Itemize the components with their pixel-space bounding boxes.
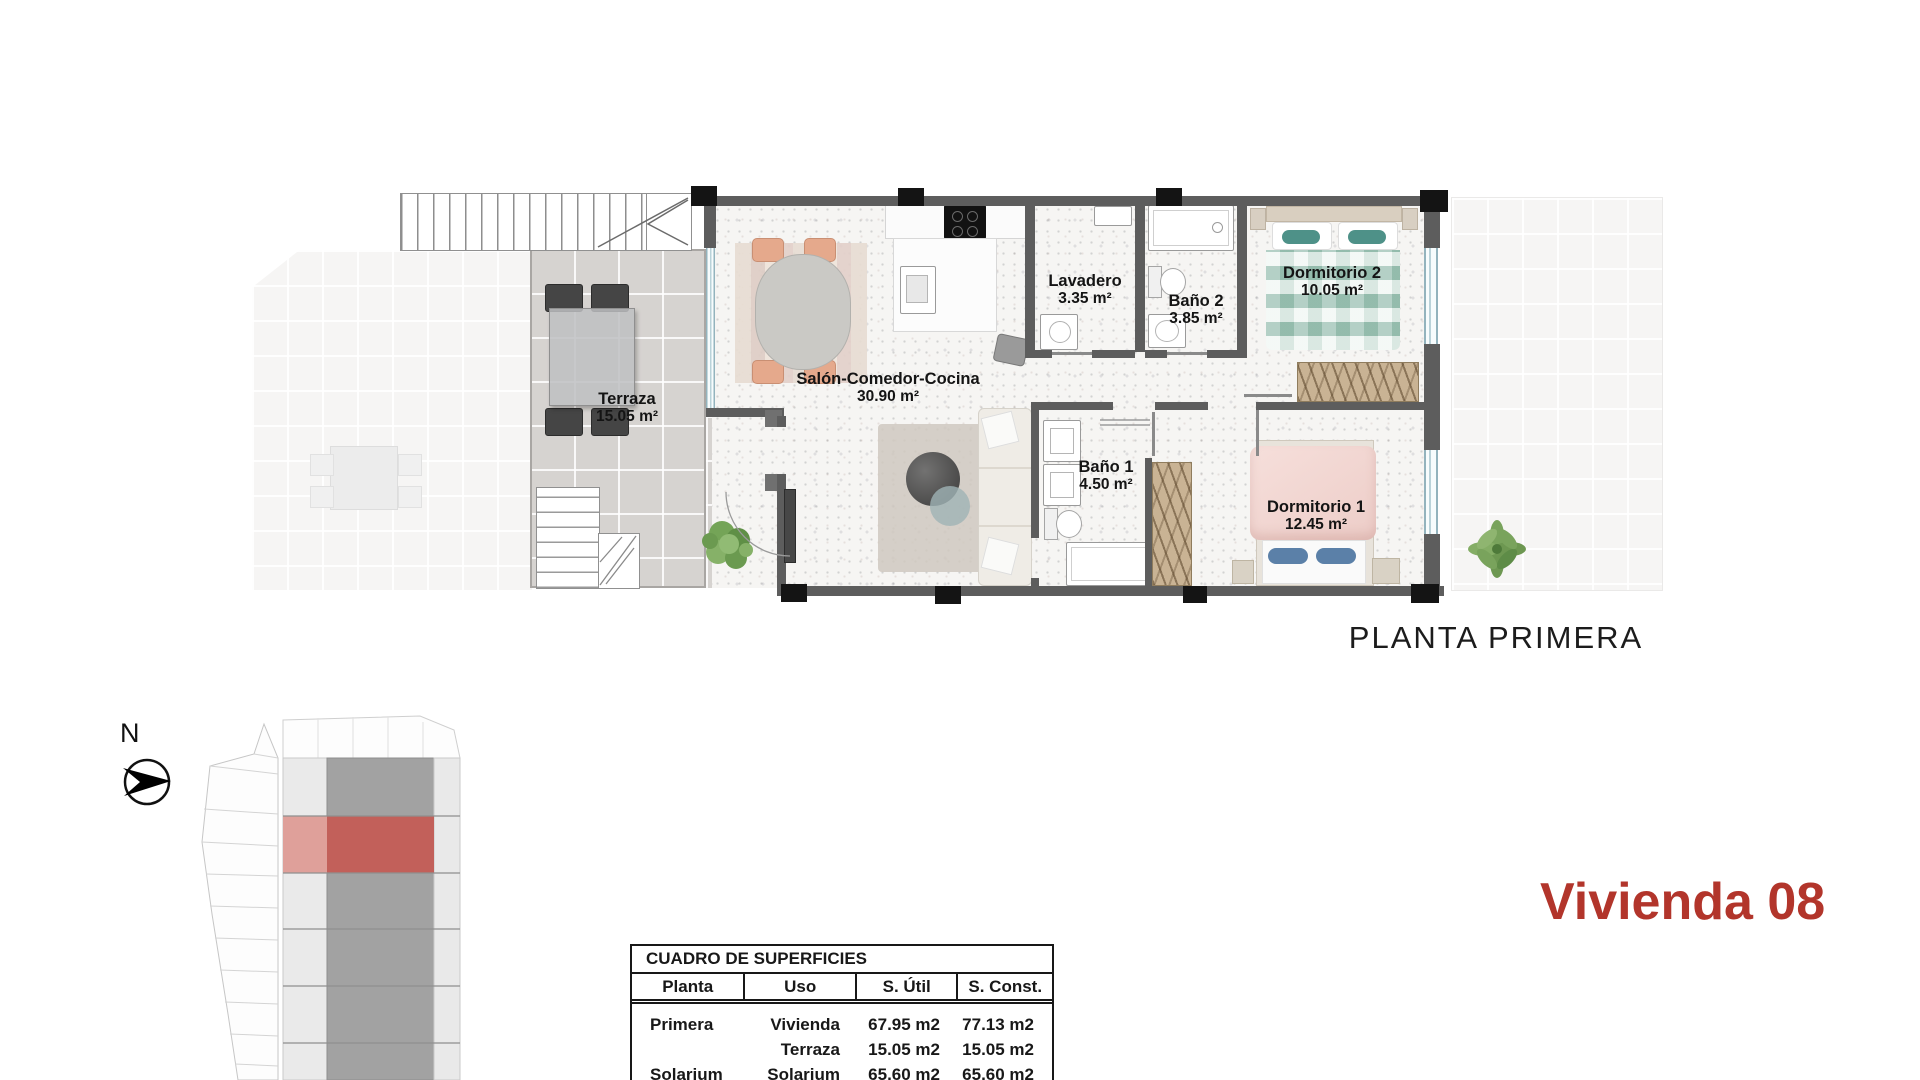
column-header: Planta	[632, 974, 745, 999]
cell-s-const: 65.60 m2	[954, 1062, 1048, 1080]
room-area: 3.85 m²	[1168, 310, 1223, 327]
room-area: 30.90 m²	[796, 388, 979, 405]
cell-s-const: 15.05 m2	[954, 1037, 1048, 1062]
surfaces-table-body: Primera Vivienda 67.95 m2 77.13 m2 Terra…	[632, 1004, 1052, 1080]
room-name: Baño 2	[1168, 292, 1223, 310]
room-area: 4.50 m²	[1078, 476, 1133, 493]
room-label-salon: Salón-Comedor-Cocina 30.90 m²	[796, 370, 979, 405]
column-header: S. Const.	[958, 974, 1052, 999]
room-label-dormitorio1: Dormitorio 1 12.45 m²	[1267, 498, 1365, 533]
cell-s-const: 77.13 m2	[954, 1012, 1048, 1037]
column-header: S. Útil	[857, 974, 959, 999]
room-label-dormitorio2: Dormitorio 2 10.05 m²	[1283, 264, 1381, 299]
room-name: Salón-Comedor-Cocina	[796, 370, 979, 388]
room-name: Terraza	[596, 390, 658, 408]
room-label-bano1: Baño 1 4.50 m²	[1078, 458, 1133, 493]
surfaces-table-title: CUADRO DE SUPERFICIES	[632, 946, 1052, 974]
room-label-terraza: Terraza 15.05 m²	[596, 390, 658, 425]
cell-uso: Terraza	[744, 1037, 854, 1062]
table-row: Primera Vivienda 67.95 m2 77.13 m2	[632, 1012, 1052, 1037]
room-name: Dormitorio 1	[1267, 498, 1365, 516]
unit-title: Vivienda 08	[1540, 872, 1860, 932]
room-name: Dormitorio 2	[1283, 264, 1381, 282]
cell-s-util: 67.95 m2	[854, 1012, 954, 1037]
floor-plan: Terraza 15.05 m² Salón-Comedor-Cocina 30…	[0, 0, 1920, 660]
cell-planta: Primera	[632, 1012, 744, 1037]
cell-s-util: 65.60 m2	[854, 1062, 954, 1080]
room-label-bano2: Baño 2 3.85 m²	[1168, 292, 1223, 327]
table-row: Solarium Solarium 65.60 m2 65.60 m2	[632, 1062, 1052, 1080]
cell-uso: Solarium	[744, 1062, 854, 1080]
north-arrow-icon	[110, 742, 188, 820]
site-plan	[198, 714, 463, 1080]
surfaces-table-header: Planta Uso S. Útil S. Const.	[632, 974, 1052, 1004]
cell-uso: Vivienda	[744, 1012, 854, 1037]
room-name: Baño 1	[1078, 458, 1133, 476]
room-name: Lavadero	[1048, 272, 1121, 290]
table-row: Terraza 15.05 m2 15.05 m2	[632, 1037, 1052, 1062]
cell-planta: Solarium	[632, 1062, 744, 1080]
room-area: 15.05 m²	[596, 408, 658, 425]
room-label-lavadero: Lavadero 3.35 m²	[1048, 272, 1121, 307]
column-header: Uso	[745, 974, 856, 999]
page: Terraza 15.05 m² Salón-Comedor-Cocina 30…	[0, 0, 1920, 1080]
room-area: 10.05 m²	[1283, 282, 1381, 299]
cell-s-util: 15.05 m2	[854, 1037, 954, 1062]
room-area: 3.35 m²	[1048, 290, 1121, 307]
plan-title: PLANTA PRIMERA	[1316, 620, 1676, 656]
room-area: 12.45 m²	[1267, 516, 1365, 533]
plan-linework	[0, 0, 1920, 660]
cell-planta	[632, 1037, 744, 1062]
surfaces-table: CUADRO DE SUPERFICIES Planta Uso S. Útil…	[630, 944, 1054, 1080]
